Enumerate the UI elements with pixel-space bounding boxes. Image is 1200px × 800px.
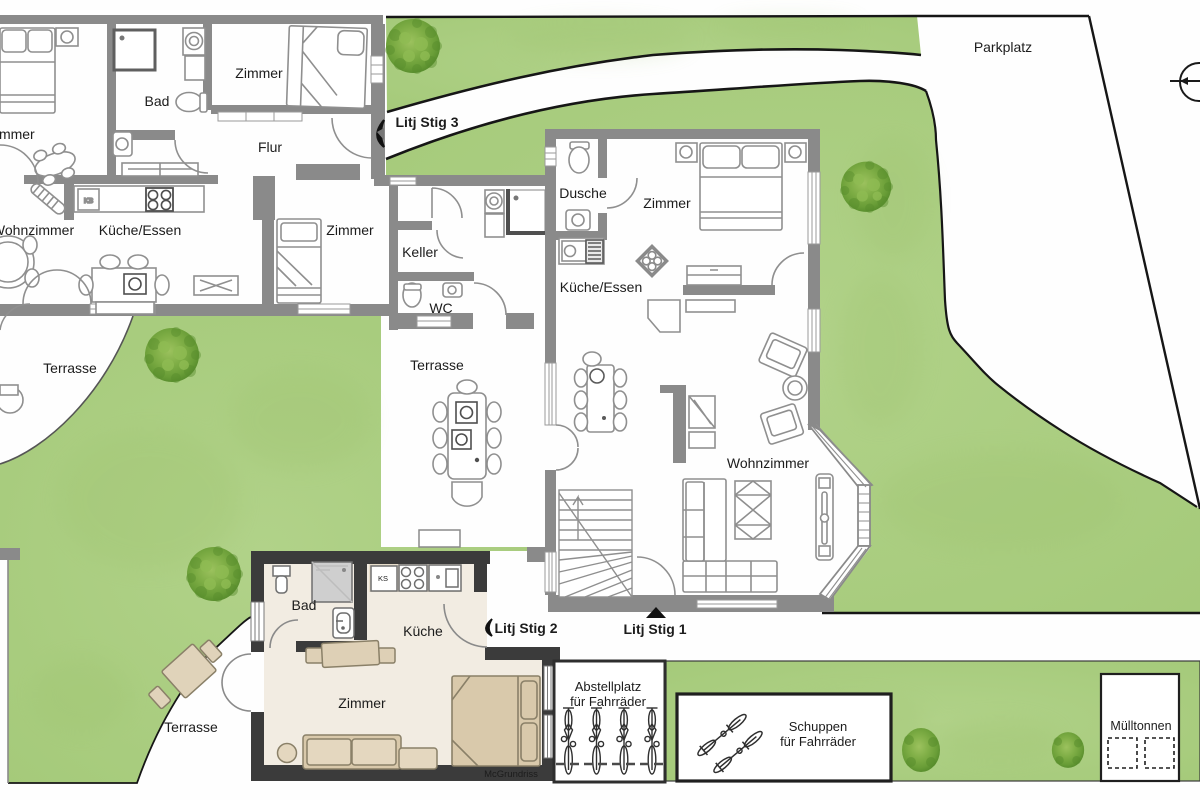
svg-text:Flur: Flur <box>258 139 282 155</box>
svg-text:Zimmer: Zimmer <box>235 65 283 81</box>
svg-text:Terrasse: Terrasse <box>410 357 464 373</box>
svg-text:Dusche: Dusche <box>559 185 607 201</box>
svg-text:Zimmer: Zimmer <box>0 126 35 142</box>
svg-text:Bad: Bad <box>292 597 317 613</box>
svg-text:Mülltonnen: Mülltonnen <box>1110 719 1171 733</box>
svg-text:Litj Stig 3: Litj Stig 3 <box>396 114 459 130</box>
svg-text:Litj Stig 2: Litj Stig 2 <box>495 620 558 636</box>
svg-text:Schuppen: Schuppen <box>789 719 848 734</box>
svg-text:Zimmer: Zimmer <box>326 222 374 238</box>
svg-text:Zimmer: Zimmer <box>338 695 386 711</box>
svg-text:KS: KS <box>378 574 388 583</box>
svg-text:Wohnzimmer: Wohnzimmer <box>727 455 810 471</box>
svg-text:Küche/Essen: Küche/Essen <box>99 222 182 238</box>
svg-text:Zimmer: Zimmer <box>643 195 691 211</box>
svg-text:Küche: Küche <box>403 623 443 639</box>
svg-text:Terrasse: Terrasse <box>164 719 218 735</box>
svg-text:Parkplatz: Parkplatz <box>974 39 1032 55</box>
svg-text:Bad: Bad <box>145 93 170 109</box>
svg-text:Küche/Essen: Küche/Essen <box>560 279 643 295</box>
svg-text:für Fahrräder: für Fahrräder <box>780 734 857 749</box>
svg-text:für Fahrräder: für Fahrräder <box>570 694 647 709</box>
svg-text:Litj Stig 1: Litj Stig 1 <box>624 621 687 637</box>
svg-text:WC: WC <box>429 300 452 316</box>
svg-text:Wohnzimmer: Wohnzimmer <box>0 222 74 238</box>
svg-text:Terrasse: Terrasse <box>43 360 97 376</box>
svg-text:McGrundriss: McGrundriss <box>484 769 538 780</box>
svg-text:Keller: Keller <box>402 244 438 260</box>
svg-text:KS: KS <box>84 198 94 205</box>
svg-text:Abstellplatz: Abstellplatz <box>575 679 641 694</box>
